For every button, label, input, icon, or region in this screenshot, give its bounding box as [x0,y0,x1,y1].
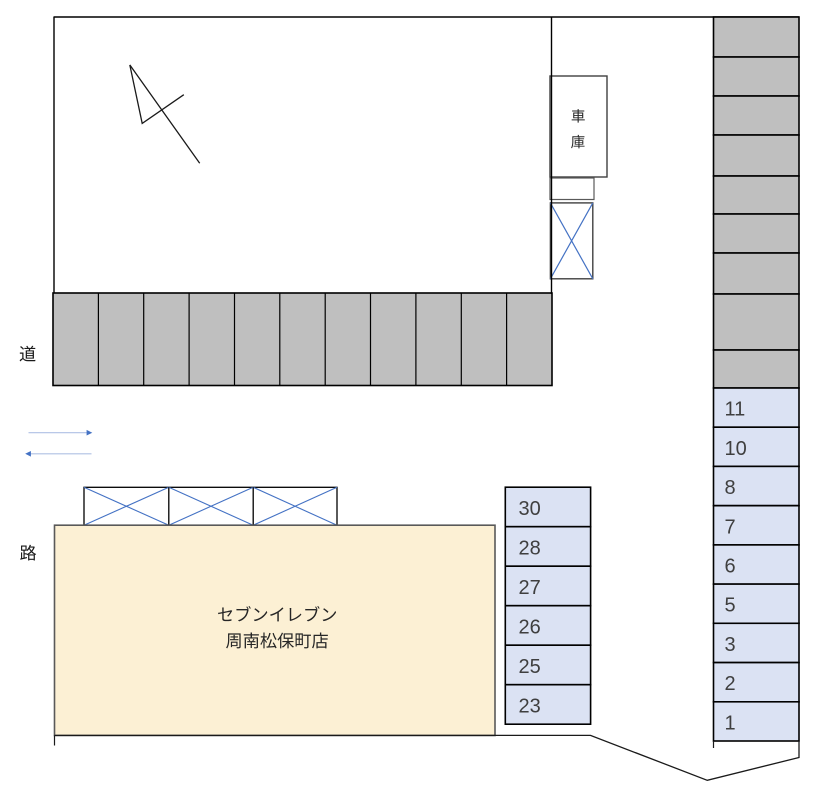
svg-text:27: 27 [519,577,541,599]
svg-text:2: 2 [725,673,736,695]
svg-text:30: 30 [519,498,541,520]
svg-text:6: 6 [725,556,736,578]
svg-text:23: 23 [519,696,541,718]
svg-text:11: 11 [725,399,746,421]
svg-text:10: 10 [725,438,747,460]
svg-text:1: 1 [725,712,736,734]
svg-text:5: 5 [725,595,736,617]
svg-text:28: 28 [519,538,541,560]
svg-text:8: 8 [725,477,736,499]
svg-text:3: 3 [725,634,736,656]
svg-text:7: 7 [725,516,736,538]
svg-text:25: 25 [519,656,541,678]
svg-text:26: 26 [519,617,541,639]
